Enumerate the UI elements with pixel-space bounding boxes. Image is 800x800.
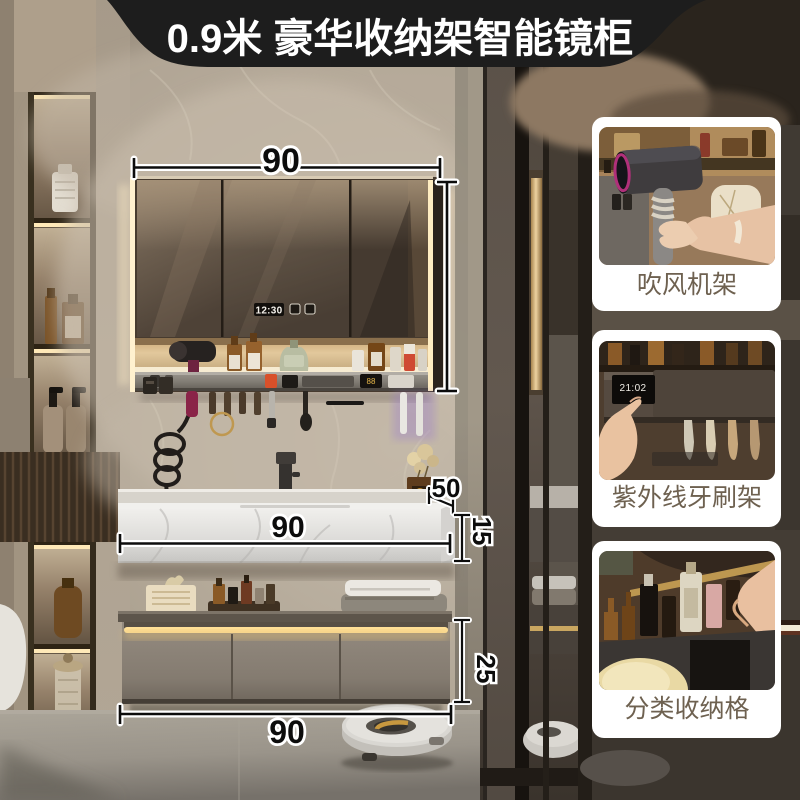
svg-text:分类收纳格: 分类收纳格 [624, 695, 749, 723]
svg-text:吹风机架: 吹风机架 [637, 271, 737, 299]
svg-text:90: 90 [269, 714, 305, 750]
svg-text:0.9米 豪华收纳架智能镜柜: 0.9米 豪华收纳架智能镜柜 [167, 17, 634, 61]
svg-text:90: 90 [271, 511, 304, 544]
svg-text:21:02: 21:02 [619, 383, 646, 394]
svg-text:88: 88 [367, 377, 376, 386]
svg-text:12:30: 12:30 [255, 306, 282, 317]
svg-text:50: 50 [432, 473, 461, 503]
svg-text:90: 90 [262, 142, 300, 180]
svg-text:25: 25 [471, 655, 501, 684]
svg-text:紫外线牙刷架: 紫外线牙刷架 [612, 484, 762, 512]
svg-text:15: 15 [467, 517, 497, 546]
